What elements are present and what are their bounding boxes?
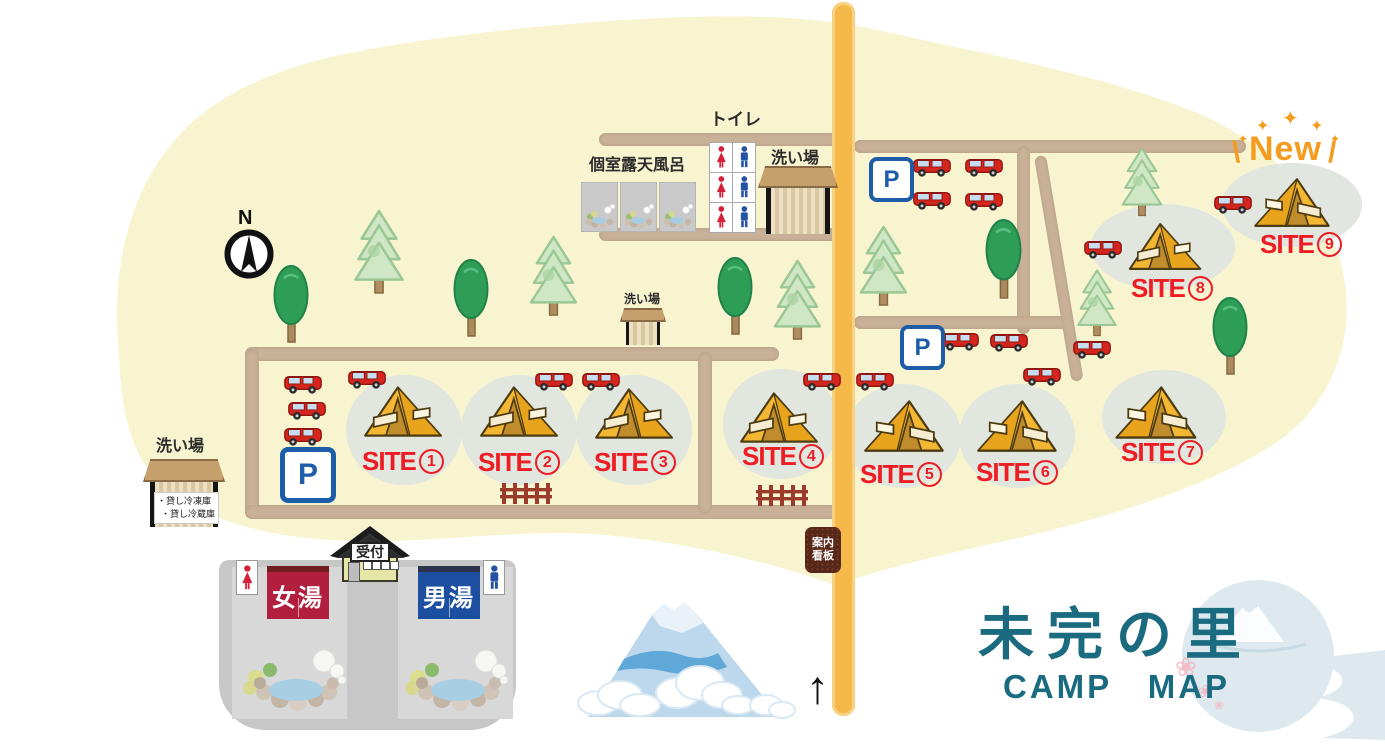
tent-icon [591,385,677,442]
reception-window [372,561,381,570]
wash-hut-roof [758,166,838,188]
site-label-6: SITE6 [976,457,1058,488]
tent-icon [736,389,822,446]
site-label-3: SITE3 [594,447,676,478]
wash-hut-wall [766,188,830,234]
site-name-text: SITE [1121,437,1175,468]
tent-icon [1125,220,1205,273]
site-name-text: SITE [860,459,914,490]
woman-icon [236,560,258,595]
info-sign-line2: 看板 [812,550,834,563]
site-number-badge: 1 [419,449,444,474]
site-number-badge: 8 [1188,276,1213,301]
car-icon [912,153,952,179]
woman-icon [710,143,732,172]
new-badge-slash: / [1328,136,1336,170]
rental-equipment-note: ・貸し冷凍庫 ・貸し冷蔵庫 [154,492,219,524]
tan-path [698,352,712,514]
site-name-text: SITE [1260,229,1314,260]
womens-bath-noren: 女湯 [267,566,329,619]
parking-sign: P [280,447,336,503]
site-label-5: SITE5 [860,459,942,490]
car-icon [287,396,327,422]
man-icon [733,173,755,202]
woman-icon [710,173,732,202]
map-subtitle: CAMP MAP [1003,668,1230,706]
private-bath-cell [581,182,618,232]
info-sign-line1: 案内 [812,537,834,550]
toilet-icon-panel [709,142,756,233]
reception-text: 受付 [356,542,384,562]
site-name-text: SITE [976,457,1030,488]
mens-bath-noren: 男湯 [418,566,480,619]
tent-icon [1250,175,1334,230]
man-icon [483,560,505,595]
tan-path [854,140,1246,153]
site-label-2: SITE2 [478,447,560,478]
car-icon [802,367,842,393]
round-tree-icon [984,218,1023,300]
car-icon [940,327,980,353]
wash-area-label-top: 洗い場 [771,144,819,168]
wash-hut-roof [620,308,666,322]
car-icon [1072,335,1112,361]
round-tree-icon [716,256,754,336]
open-air-bath [402,648,514,712]
site-label-4: SITE4 [742,441,824,472]
site-number-badge: 5 [917,462,942,487]
parking-sign: P [900,325,945,370]
camp-map-canvas: N トイレ 個室露天風呂 洗い場 洗い場 [0,0,1385,747]
car-icon [964,153,1004,179]
private-bath-label: 個室露天風呂 [589,151,685,175]
toilet-label: トイレ [710,105,761,130]
wash-hut-wall [626,322,660,345]
car-icon [581,367,621,393]
pine-tree-icon [1118,146,1166,218]
tent-icon [360,383,446,440]
tan-path [245,505,837,519]
site-name-text: SITE [362,446,416,477]
site-label-9: SITE9 [1260,229,1342,260]
car-icon [989,328,1029,354]
tan-path [245,349,259,519]
car-icon [283,370,323,396]
site-number-badge: 4 [799,444,824,469]
new-badge: ✦ ✦ ✦ ✦ ✦ \ New / [1232,98,1348,180]
sparkle-icon: ✦ [1282,106,1299,131]
car-icon [964,187,1004,213]
reception-window [363,561,372,570]
car-icon [283,422,323,448]
compass-icon [224,228,274,280]
site-name-text: SITE [594,447,648,478]
rental-fridge-label: ・貸し冷蔵庫 [161,508,217,521]
site-number-badge: 7 [1178,440,1203,465]
mens-bath-label: 男湯 [423,578,475,613]
round-tree-icon [1211,296,1249,376]
fence-icon [499,483,553,504]
pine-tree-icon [1074,268,1120,338]
pine-tree-icon [526,234,581,318]
car-icon [1022,362,1062,388]
pine-tree-icon [770,258,825,342]
site-label-8: SITE8 [1131,273,1213,304]
site-number-badge: 9 [1317,232,1342,257]
reception-door [348,562,360,582]
parking-sign: P [869,157,914,202]
new-badge-backslash: \ [1232,136,1240,170]
open-air-bath [240,648,352,712]
map-title: 未完の里 [978,590,1254,671]
main-road [832,2,855,716]
round-tree-icon [272,264,310,344]
site-name-text: SITE [478,447,532,478]
site-number-badge: 3 [651,450,676,475]
mount-fuji-illustration [560,593,800,725]
new-badge-label: New [1249,130,1322,169]
car-icon [1213,190,1253,216]
entrance-arrow: ↑ [806,660,829,714]
rental-freezer-label: ・貸し冷凍庫 [157,495,217,508]
private-bath-cells [581,182,696,232]
car-icon [855,367,895,393]
car-icon [534,367,574,393]
tent-icon [1111,383,1201,442]
wash-area-label-mid: 洗い場 [624,290,660,307]
reception-window [390,561,399,570]
site-name-text: SITE [1131,273,1185,304]
wash-area-label-left: 洗い場 [156,432,204,456]
site-number-badge: 2 [535,450,560,475]
round-tree-icon [452,258,490,338]
pine-tree-icon [350,208,408,296]
info-sign: 案内 看板 [805,527,841,573]
private-bath-cell [620,182,657,232]
reception-label: 受付 [350,542,390,562]
man-icon [733,143,755,172]
site-number-badge: 6 [1033,460,1058,485]
fence-icon [755,485,809,506]
site-name-text: SITE [742,441,796,472]
wash-hut-roof [143,459,225,482]
woman-icon [710,203,732,232]
man-icon [733,203,755,232]
site-label-1: SITE1 [362,446,444,477]
car-icon [912,186,952,212]
compass-north-label: N [238,207,252,230]
tent-icon [860,397,948,455]
site-label-7: SITE7 [1121,437,1203,468]
womens-bath-label: 女湯 [272,578,324,613]
car-icon [1083,235,1123,261]
car-icon [347,365,387,391]
reception-window [381,561,390,570]
pine-tree-icon [856,224,911,308]
private-bath-cell [659,182,696,232]
tent-icon [973,397,1061,455]
